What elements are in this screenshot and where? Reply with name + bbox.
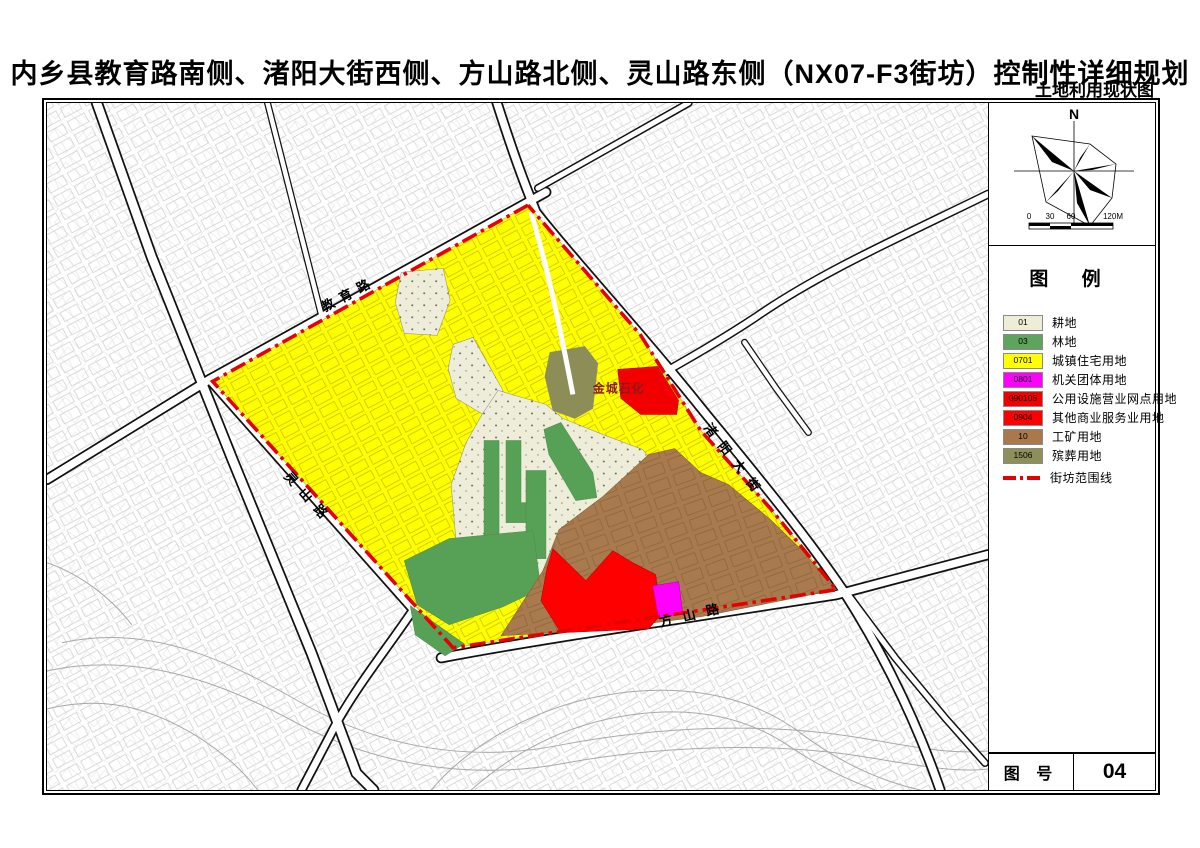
legend-item-industrial: 10 工矿用地 bbox=[1003, 427, 1155, 446]
legend-swatch-utility: 090105 bbox=[1003, 391, 1043, 407]
north-compass-icon: N bbox=[1014, 106, 1134, 228]
figure-number-row: 图 号 04 bbox=[989, 752, 1155, 790]
page-title: 内乡县教育路南侧、渚阳大街西侧、方山路北侧、灵山路东侧（NX07-F3街坊）控制… bbox=[0, 52, 1200, 91]
legend-item-utility: 090105 公用设施营业网点用地 bbox=[1003, 389, 1155, 408]
compass-scale-box: N 0 bbox=[989, 103, 1155, 246]
legend-swatch-commercial: 0904 bbox=[1003, 410, 1043, 426]
legend-swatch-cultivated: 01 bbox=[1003, 315, 1043, 331]
legend-swatch-industrial: 10 bbox=[1003, 429, 1043, 445]
area-label-jinchengshihua: 金城石化 bbox=[592, 380, 645, 395]
legend-item-forest: 03 林地 bbox=[1003, 332, 1155, 351]
map-frame: 教育路 灵山路 方山路 渚阳大街 金城石化 N bbox=[42, 98, 1160, 795]
legend-swatch-residential: 0701 bbox=[1003, 353, 1043, 369]
legend-title: 图 例 bbox=[1003, 264, 1141, 291]
figure-number-label: 图 号 bbox=[989, 754, 1074, 790]
legend-item-government: 0801 机关团体用地 bbox=[1003, 370, 1155, 389]
compass-scale-svg: N 0 bbox=[989, 103, 1155, 245]
svg-text:120M: 120M bbox=[1103, 212, 1123, 221]
legend-swatch-government: 0801 bbox=[1003, 372, 1043, 388]
legend-item-residential: 0701 城镇住宅用地 bbox=[1003, 351, 1155, 370]
svg-text:0: 0 bbox=[1027, 212, 1032, 221]
map-canvas: 教育路 灵山路 方山路 渚阳大街 金城石化 bbox=[47, 103, 988, 790]
legend-item-cemetery: 1506 殡葬用地 bbox=[1003, 446, 1155, 465]
figure-number-value: 04 bbox=[1074, 754, 1155, 790]
north-label: N bbox=[1069, 106, 1079, 122]
legend-boundary-line-sample bbox=[1003, 476, 1041, 480]
legend: 图 例 01 耕地 03 林地 0701 城镇住宅用地 0801 bbox=[989, 246, 1155, 752]
svg-text:30: 30 bbox=[1046, 212, 1055, 221]
scale-bar: 0 30 60 120M bbox=[1027, 212, 1124, 229]
legend-item-boundary: 街坊范围线 bbox=[1003, 468, 1155, 487]
planning-map-page: 内乡县教育路南侧、渚阳大街西侧、方山路北侧、灵山路东侧（NX07-F3街坊）控制… bbox=[0, 0, 1200, 848]
legend-item-commercial: 0904 其他商业服务业用地 bbox=[1003, 408, 1155, 427]
legend-item-cultivated: 01 耕地 bbox=[1003, 313, 1155, 332]
side-panel: N 0 bbox=[988, 103, 1155, 790]
svg-text:60: 60 bbox=[1067, 212, 1076, 221]
legend-swatch-cemetery: 1506 bbox=[1003, 448, 1043, 464]
map-inner-frame: 教育路 灵山路 方山路 渚阳大街 金城石化 N bbox=[46, 102, 1156, 791]
legend-swatch-forest: 03 bbox=[1003, 334, 1043, 350]
